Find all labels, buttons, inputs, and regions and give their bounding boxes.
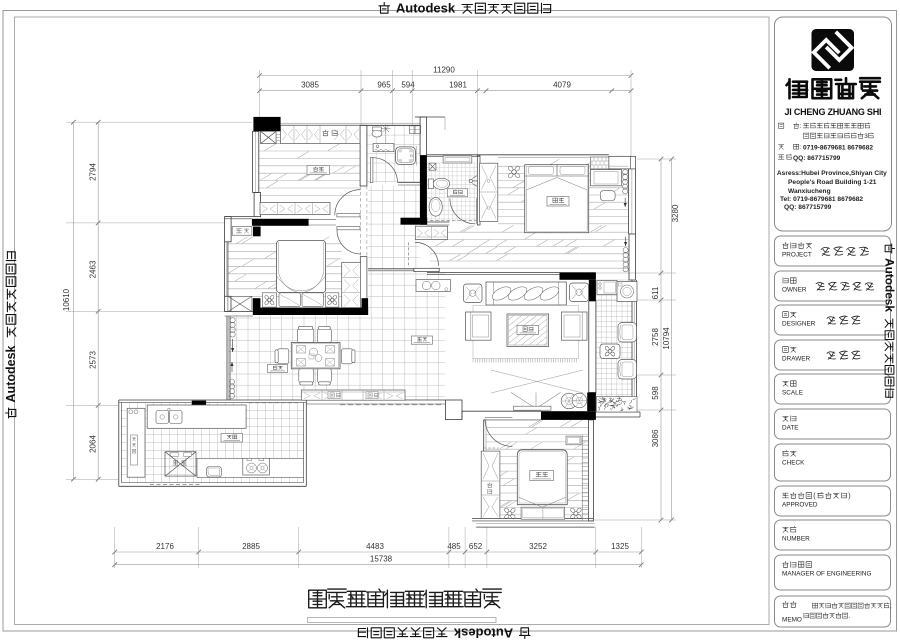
svg-text:Autodesk: Autodesk [883,258,897,312]
svg-text:Autodesk: Autodesk [396,1,456,16]
svg-text:OWNER: OWNER [782,287,807,294]
svg-text:DESIGNER: DESIGNER [782,321,816,328]
svg-text:10794: 10794 [662,327,671,350]
svg-text:People's Road Building 1-21: People's Road Building 1-21 [788,179,877,186]
svg-text:2176: 2176 [156,542,174,551]
svg-text:3252: 3252 [529,542,547,551]
svg-text:652: 652 [469,542,483,551]
svg-text:598: 598 [651,386,660,400]
svg-text:4483: 4483 [366,542,384,551]
svg-text:Autodesk: Autodesk [4,345,18,402]
svg-text:2573: 2573 [89,351,98,369]
svg-text:3086: 3086 [651,429,660,447]
svg-text:2463: 2463 [89,260,98,278]
svg-text:MEMO: MEMO [782,617,802,624]
svg-text:JI CHENG ZHUANG SHI: JI CHENG ZHUANG SHI [785,107,882,117]
svg-text:485: 485 [447,542,461,551]
svg-text:611: 611 [651,286,660,299]
svg-text:3085: 3085 [301,81,319,90]
svg-text:QQ: 867715799: QQ: 867715799 [784,204,832,211]
svg-text:11290: 11290 [433,66,455,75]
svg-text:965: 965 [377,81,391,90]
svg-text:SCALE: SCALE [782,390,803,397]
svg-text:15738: 15738 [370,555,393,564]
svg-text:3: 3 [864,133,868,140]
svg-text::: : [800,144,802,151]
svg-text:NUMBER: NUMBER [782,536,810,543]
svg-text:): ) [848,493,850,500]
svg-text:1981: 1981 [449,81,467,90]
svg-text:Wanxiucheng: Wanxiucheng [788,188,831,195]
svg-text:,: , [890,603,892,610]
svg-text:APPROVED: APPROVED [782,502,818,509]
svg-text:.: . [849,613,851,620]
svg-text:594: 594 [401,81,415,90]
svg-text:2758: 2758 [651,328,660,346]
svg-text:4079: 4079 [553,81,571,90]
svg-text:Asress:Hubei Province,Shiyan C: Asress:Hubei Province,Shiyan City [777,170,887,177]
svg-text:0719-8679681 8679682: 0719-8679681 8679682 [803,145,873,152]
svg-text:QQ: 867715799: QQ: 867715799 [793,155,841,162]
svg-text:10610: 10610 [62,288,71,311]
svg-text:Tel: 0719-8679681 8679682: Tel: 0719-8679681 8679682 [780,196,863,203]
svg-text:2064: 2064 [89,435,98,453]
svg-text:PROJECT: PROJECT [782,252,812,259]
svg-text:3280: 3280 [671,204,680,222]
svg-text:2885: 2885 [242,542,260,551]
svg-text:CHECK: CHECK [782,460,805,467]
svg-text:DATE: DATE [782,425,799,432]
svg-text:DRAWER: DRAWER [782,356,811,363]
svg-text:MANAGER OF ENGINEERING: MANAGER OF ENGINEERING [782,571,872,578]
svg-text::: : [800,123,802,130]
svg-text:2794: 2794 [89,163,98,181]
svg-text:1325: 1325 [611,542,629,551]
svg-text:Autodesk: Autodesk [453,626,513,641]
